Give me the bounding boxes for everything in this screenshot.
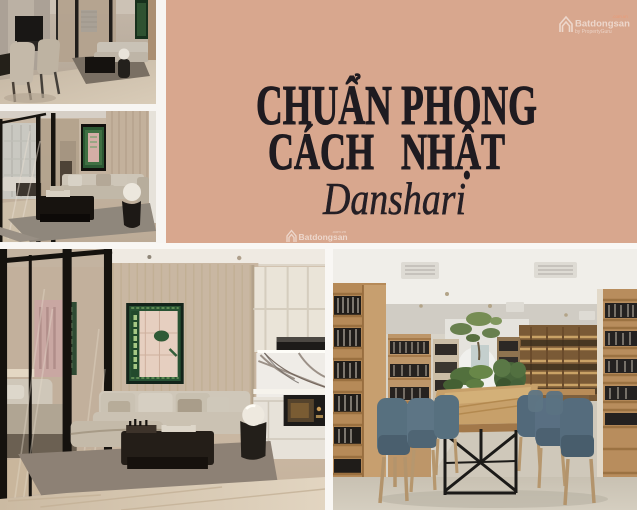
svg-text:Danshari: Danshari [322,173,466,224]
svg-text:Batdongsan: Batdongsan [575,19,630,30]
svg-text:by PropertyGuru: by PropertyGuru [575,29,612,35]
svg-text:.com.vn: .com.vn [612,14,628,19]
svg-text:.com.vn: .com.vn [332,229,346,234]
